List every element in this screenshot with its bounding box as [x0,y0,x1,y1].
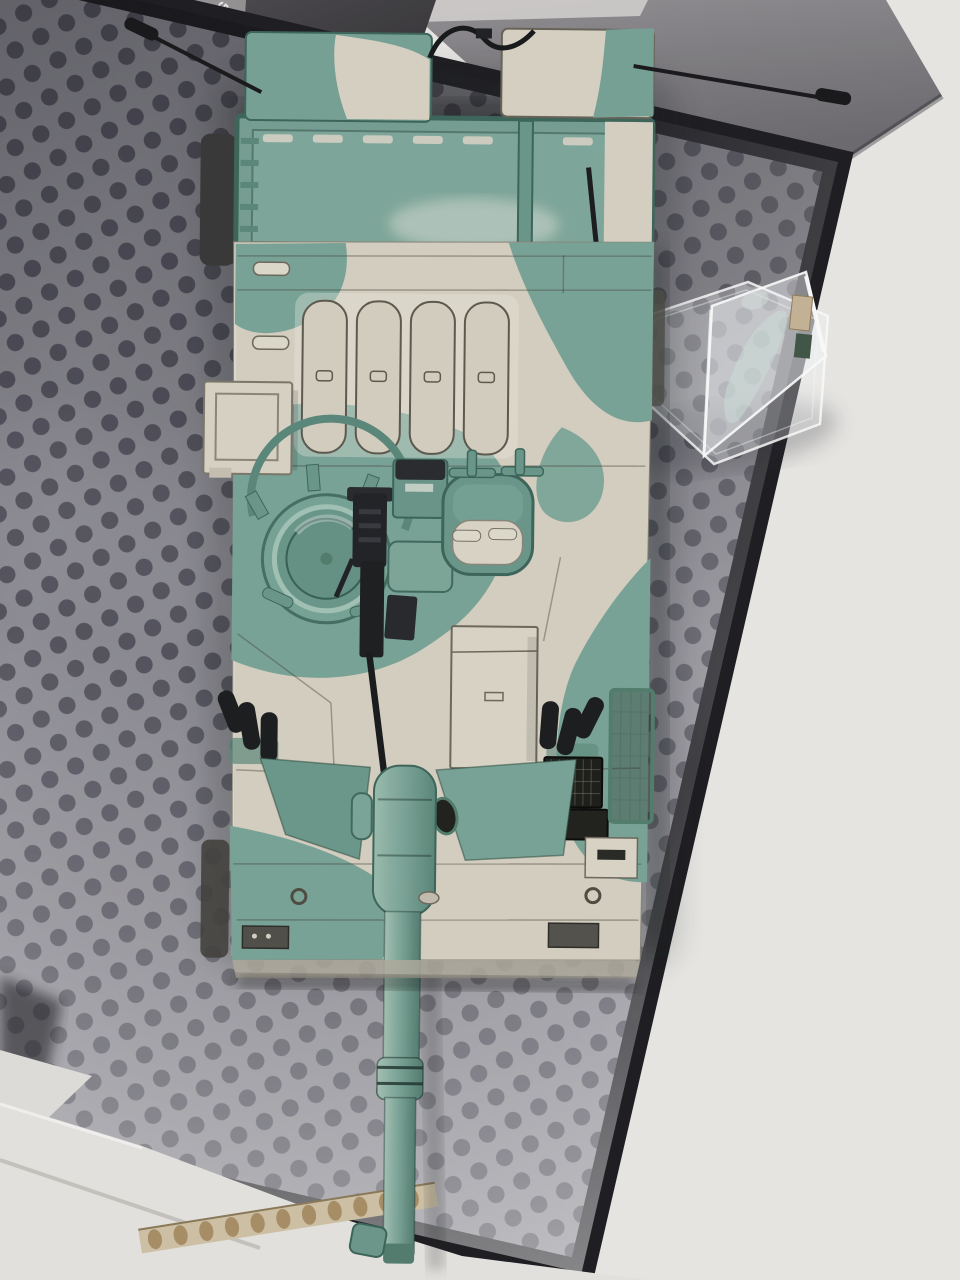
vignette [0,0,960,1280]
photo-stage: ALL & STYLIS R SMARTPHONE WAS BORN AFTER… [0,0,960,1280]
scene: ALL & STYLIS R SMARTPHONE WAS BORN AFTER… [0,0,960,1280]
